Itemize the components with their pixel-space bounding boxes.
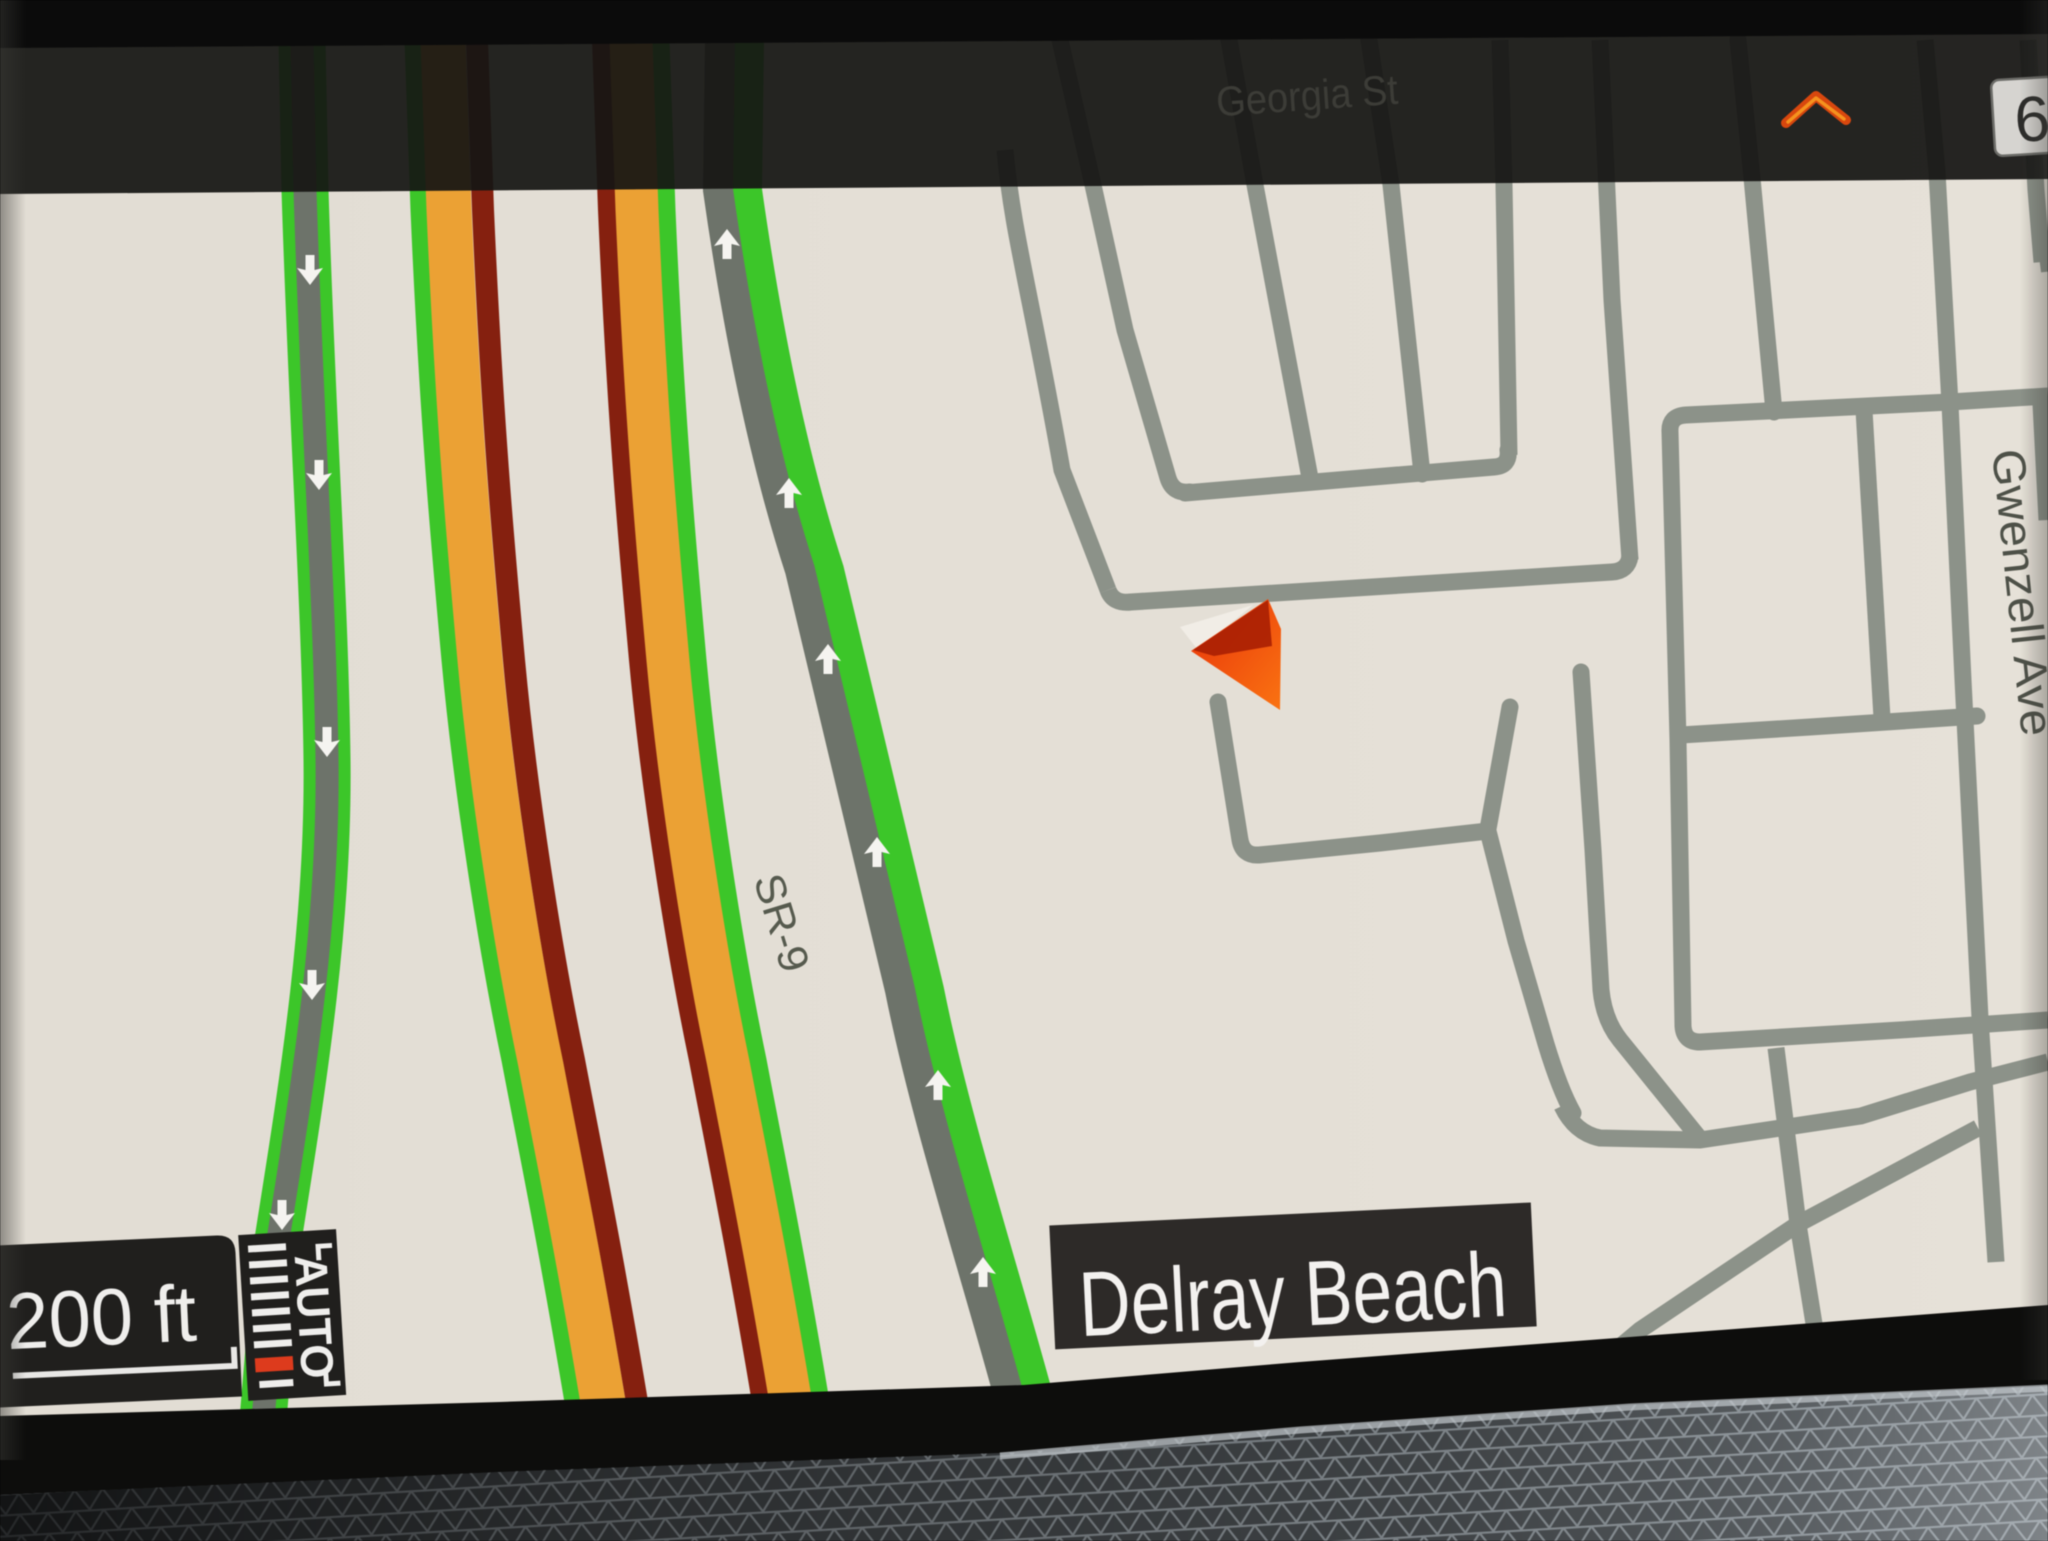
svg-text:200 ft: 200 ft [4,1269,198,1367]
svg-text:AUTO: AUTO [285,1253,344,1380]
svg-text:Delray Beach: Delray Beach [1077,1234,1509,1356]
